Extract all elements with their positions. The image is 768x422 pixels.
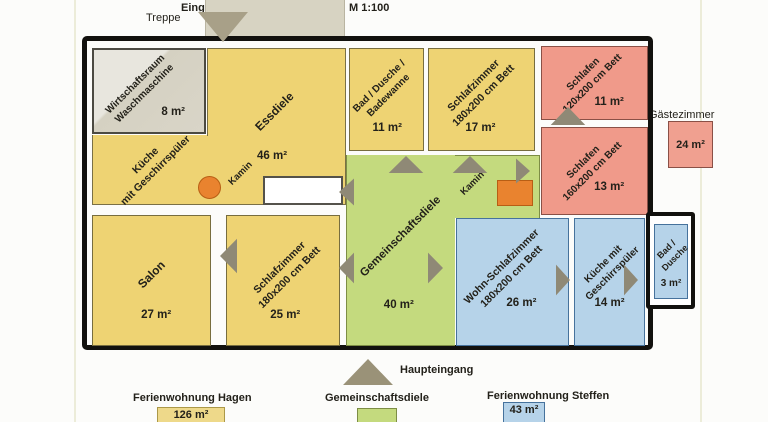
room-area: 8 m²: [161, 106, 185, 118]
room-area: 3 m²: [661, 278, 682, 289]
legend-hagen-label: Ferienwohnung Hagen: [133, 392, 252, 404]
room-area: 26 m²: [506, 297, 536, 309]
legend-steffen-area: 43 m²: [510, 404, 539, 416]
room-essdiele: Essdiele: [207, 48, 346, 136]
main-entrance-arrow-icon: [342, 359, 394, 385]
room-label: Essdiele: [252, 89, 297, 134]
legend-steffen-label: Ferienwohnung Steffen: [487, 390, 609, 402]
gaestezimmer-area-box: 24 m²: [668, 121, 713, 168]
legend-steffen-area-box: 43 m²: [503, 402, 545, 422]
sideboard-shape: [263, 176, 343, 205]
room-area: 17 m²: [465, 122, 495, 134]
room-area: 46 m²: [257, 150, 287, 162]
room-area: 13 m²: [594, 181, 624, 193]
legend-hagen-area: 126 m²: [174, 409, 209, 421]
paper-edge-right: [700, 0, 702, 422]
gaestezimmer-label: Gästezimmer: [649, 109, 714, 121]
room-gemeinschaftsdiele: Gemeinschaftsdiele 40 m²: [346, 155, 455, 346]
treppe-label: Treppe: [146, 12, 180, 24]
floorplan-page: Treppe Eingang von Terrasse M 1:100 Wirt…: [0, 0, 768, 422]
room-area: 11 m²: [594, 96, 623, 108]
room-schlafzimmer-mitte: Schlafzimmer 180x200 cm Bett 17 m²: [428, 48, 535, 151]
room-area: 25 m²: [270, 309, 300, 321]
room-area: 14 m²: [594, 297, 624, 309]
room-bad-steffen: Bad / Dusche 3 m²: [654, 224, 688, 299]
room-salon: Salon 27 m²: [92, 215, 211, 346]
fireplace-icon: [198, 176, 221, 199]
room-label: mit Geschirrspüler: [118, 133, 194, 209]
gaestezimmer-area: 24 m²: [676, 139, 705, 151]
fireplace-icon: [497, 180, 533, 206]
room-schlafen-klein: Schlafen 120x200 cm Bett 11 m²: [541, 46, 648, 120]
main-entrance-label: Haupteingang: [400, 364, 473, 376]
legend-diele-label: Gemeinschaftsdiele: [325, 392, 429, 404]
room-area: 40 m²: [384, 299, 414, 311]
room-label: Salon: [134, 258, 168, 292]
paper-edge-left: [74, 0, 76, 422]
room-schlafzimmer-hagen: Schlafzimmer 180x200 cm Bett 25 m²: [226, 215, 340, 346]
scale-label: M 1:100: [349, 2, 389, 14]
room-wohn-schlafzimmer: Wohn-Schlafzimmer 180x200 cm Bett 26 m²: [456, 218, 569, 346]
room-schlafen-gross: Schlafen 160x200 cm Bett 13 m²: [541, 127, 648, 215]
room-area: 27 m²: [141, 309, 171, 321]
room-area: 11 m²: [373, 122, 402, 134]
room-bad-hagen: Bad / Dusche / Badewanne 11 m²: [349, 48, 424, 151]
legend-diele-box: [357, 408, 397, 422]
room-wirtschaftsraum: Wirtschaftsraum Waschmaschine 8 m²: [92, 48, 206, 134]
legend-hagen-area-box: 126 m²: [157, 407, 225, 422]
